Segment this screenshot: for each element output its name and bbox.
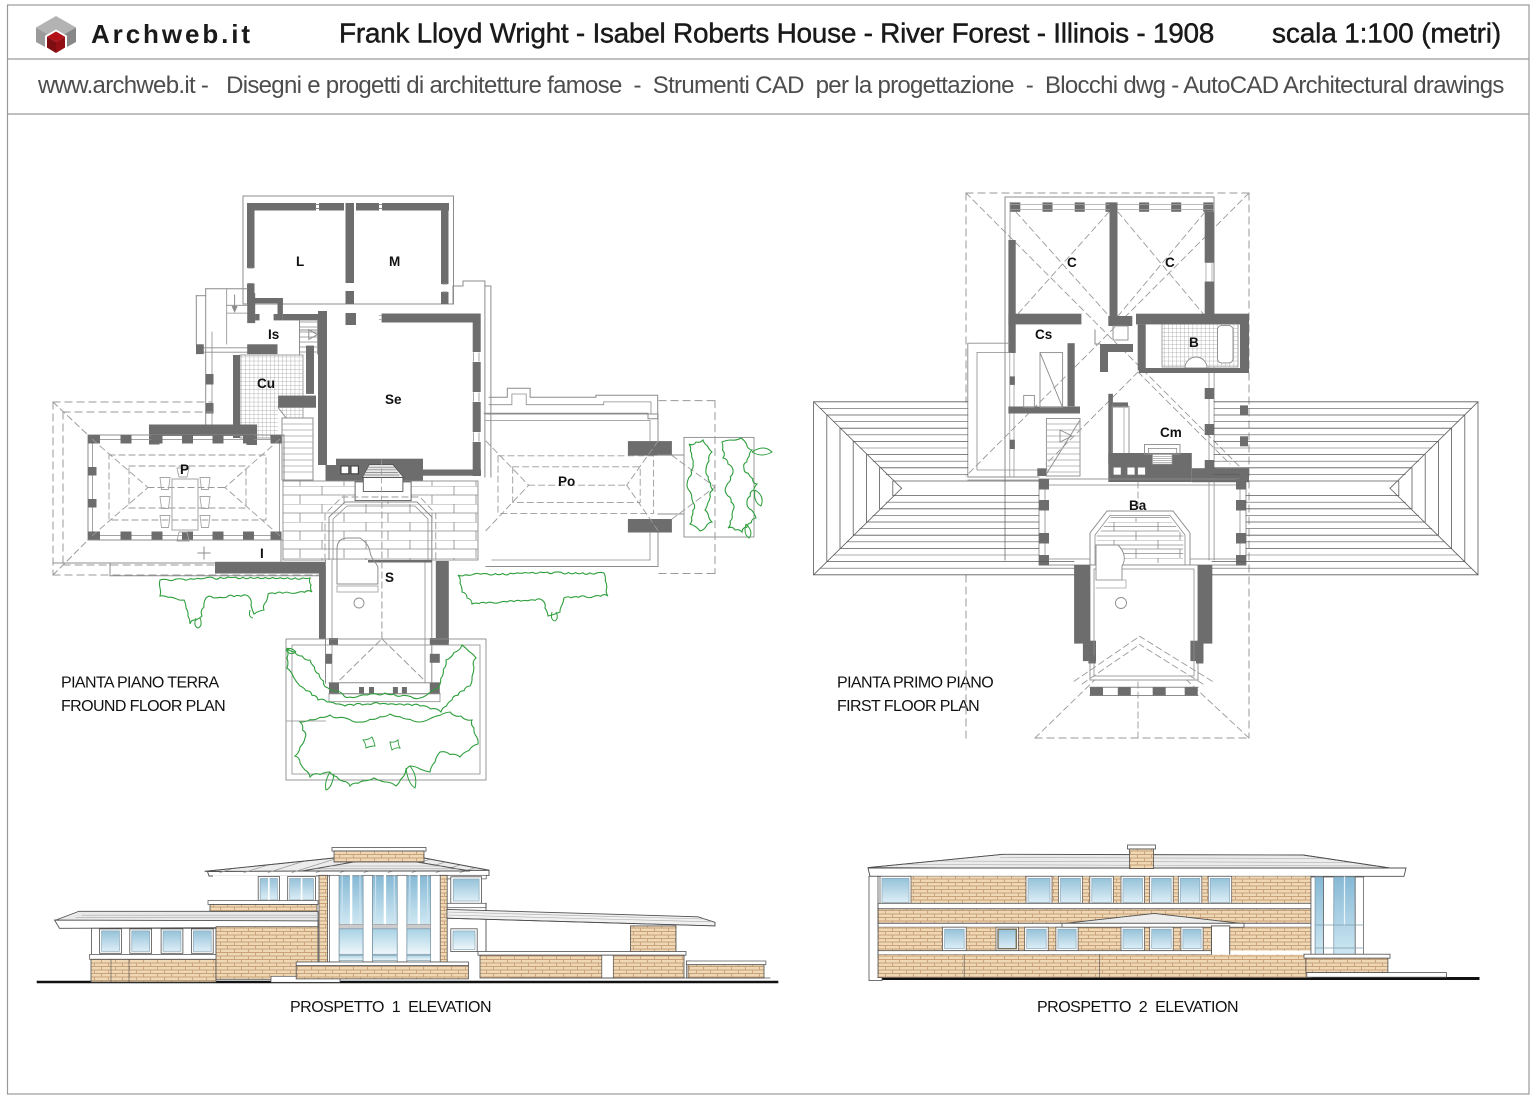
svg-text:Cu: Cu <box>257 376 275 391</box>
svg-text:Is: Is <box>268 327 279 342</box>
svg-text:Po: Po <box>558 474 575 489</box>
svg-text:Cs: Cs <box>1035 327 1052 342</box>
svg-text:Cm: Cm <box>1160 425 1182 440</box>
svg-text:www.archweb.it - Disegni e p: www.archweb.it - Disegni e progetti di a… <box>37 72 1504 99</box>
svg-text:C: C <box>1067 255 1077 270</box>
svg-text:P: P <box>180 462 189 477</box>
svg-text:Archweb.it: Archweb.it <box>91 19 253 49</box>
svg-text:PROSPETTO 2 ELEVATION: PROSPETTO 2 ELEVATION <box>1037 999 1238 1016</box>
svg-text:PIANTA PIANO TERRA: PIANTA PIANO TERRA <box>61 675 219 692</box>
svg-text:S: S <box>385 570 394 585</box>
svg-text:Frank Lloyd Wright - Isabel Ro: Frank Lloyd Wright - Isabel Roberts Hous… <box>339 18 1214 49</box>
svg-text:M: M <box>389 254 400 269</box>
svg-text:Ba: Ba <box>1129 498 1147 513</box>
svg-text:Se: Se <box>385 392 402 407</box>
svg-text:FIRST FLOOR PLAN: FIRST FLOOR PLAN <box>837 698 979 715</box>
svg-text:C: C <box>1165 255 1175 270</box>
svg-text:PROSPETTO 1 ELEVATION: PROSPETTO 1 ELEVATION <box>290 999 491 1016</box>
svg-text:I: I <box>260 546 264 561</box>
svg-text:B: B <box>1189 335 1199 350</box>
svg-text:FROUND FLOOR PLAN: FROUND FLOOR PLAN <box>61 698 225 715</box>
svg-text:L: L <box>296 254 304 269</box>
svg-text:scala 1:100 (metri): scala 1:100 (metri) <box>1272 18 1501 49</box>
svg-text:PIANTA PRIMO PIANO: PIANTA PRIMO PIANO <box>837 675 993 692</box>
